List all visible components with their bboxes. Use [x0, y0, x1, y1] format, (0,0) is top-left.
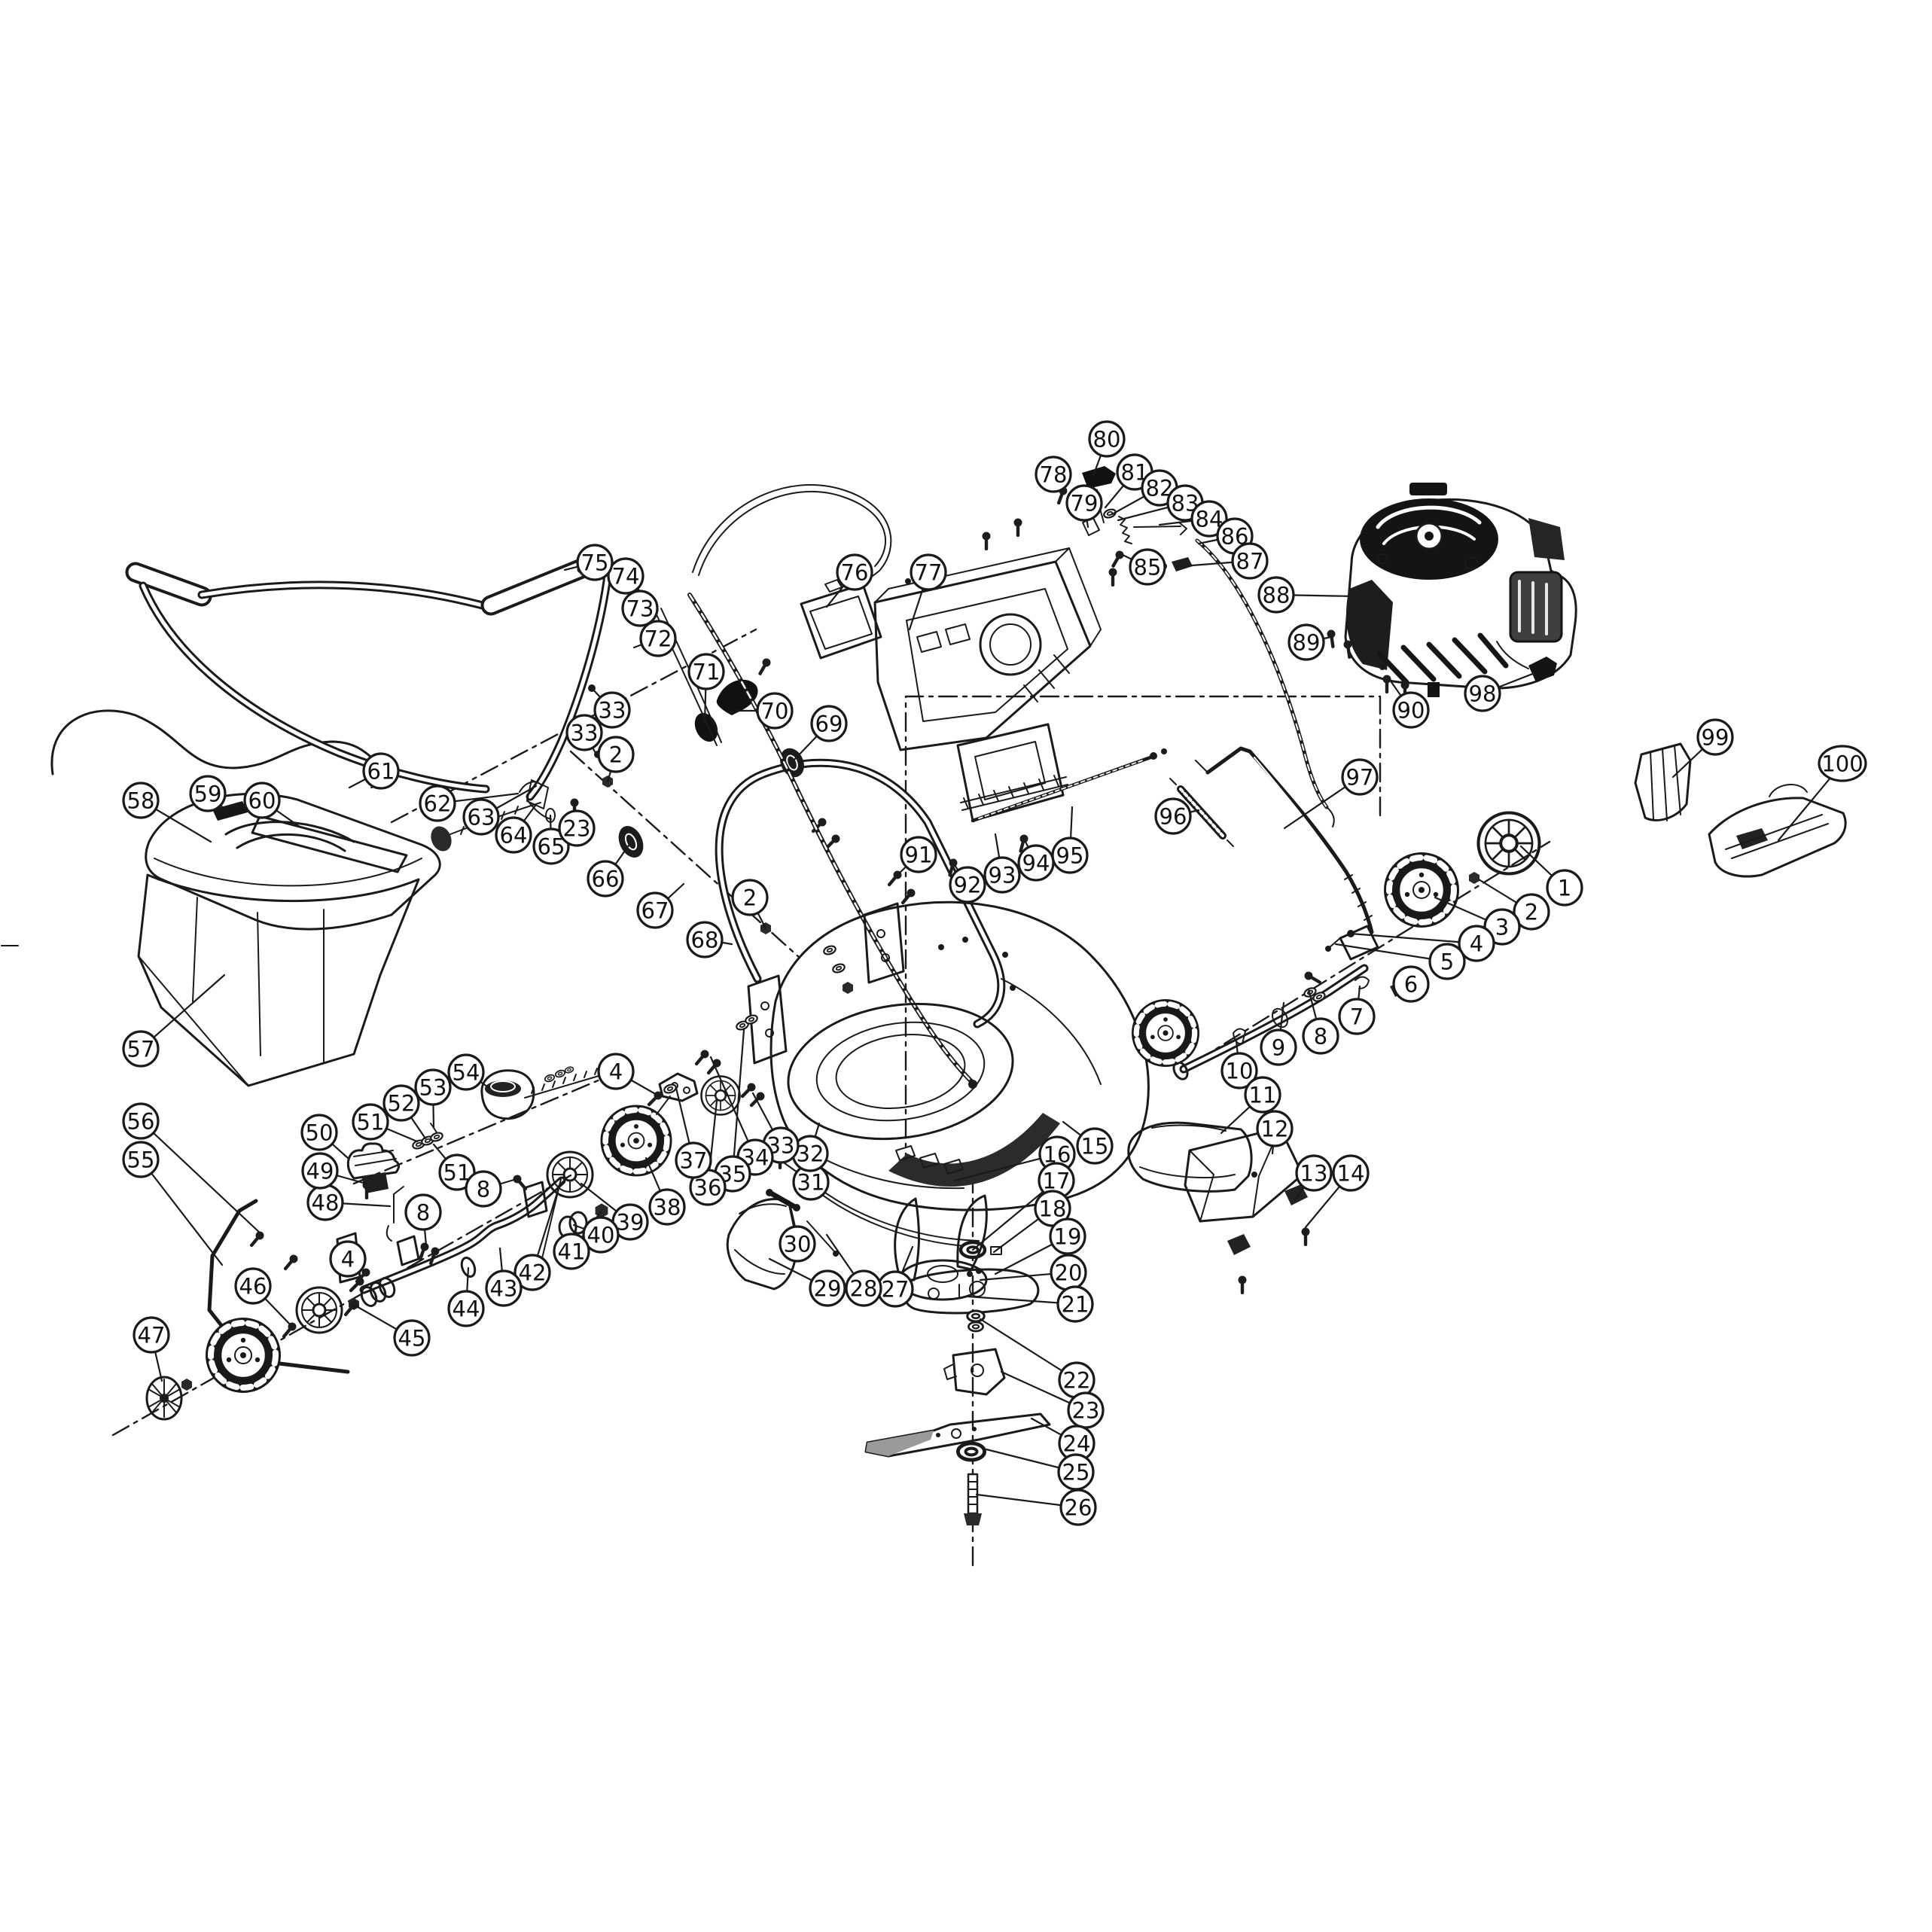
callout-67: 67 [638, 893, 672, 928]
svg-text:31: 31 [797, 1169, 825, 1195]
svg-text:28: 28 [850, 1275, 878, 1301]
callout-28: 28 [846, 1271, 881, 1306]
svg-text:73: 73 [626, 596, 654, 621]
callout-41: 41 [554, 1234, 589, 1269]
svg-text:29: 29 [814, 1275, 842, 1301]
callout-27: 27 [878, 1272, 913, 1306]
svg-text:80: 80 [1093, 426, 1121, 452]
callout-29: 29 [810, 1271, 845, 1306]
blade-assembly [866, 1196, 1050, 1525]
svg-text:79: 79 [1071, 490, 1099, 516]
callout-61: 61 [364, 754, 398, 788]
svg-text:46: 46 [239, 1273, 267, 1299]
svg-text:97: 97 [1346, 764, 1374, 790]
svg-text:52: 52 [388, 1090, 416, 1116]
svg-text:61: 61 [367, 758, 395, 784]
svg-text:9: 9 [1272, 1035, 1285, 1060]
rear-left-wheel [206, 1318, 281, 1393]
callout-68: 68 [687, 922, 722, 957]
svg-text:66: 66 [592, 866, 620, 891]
callout-52: 52 [384, 1086, 419, 1120]
svg-text:23: 23 [1072, 1397, 1100, 1423]
callout-20: 20 [1051, 1255, 1086, 1290]
callout-66: 66 [588, 861, 623, 896]
svg-text:100: 100 [1821, 751, 1863, 776]
svg-text:91: 91 [905, 842, 933, 867]
callout-14: 14 [1333, 1156, 1368, 1190]
callout-74: 74 [608, 559, 643, 593]
svg-text:14: 14 [1337, 1160, 1365, 1186]
callout-79: 79 [1067, 486, 1102, 520]
callout-25: 25 [1059, 1455, 1093, 1489]
svg-text:4: 4 [609, 1059, 623, 1084]
svg-text:85: 85 [1134, 554, 1162, 580]
svg-text:64: 64 [500, 822, 528, 848]
svg-text:78: 78 [1040, 462, 1068, 487]
svg-text:71: 71 [693, 659, 721, 684]
svg-text:6: 6 [1404, 971, 1418, 997]
svg-text:63: 63 [468, 804, 495, 830]
svg-text:72: 72 [645, 626, 672, 651]
callout-51: 51 [353, 1105, 388, 1139]
svg-text:36: 36 [694, 1175, 722, 1200]
svg-text:33: 33 [571, 720, 599, 745]
bag-cloth [139, 875, 419, 1086]
svg-text:39: 39 [617, 1209, 645, 1235]
svg-text:88: 88 [1263, 582, 1291, 608]
callout-76: 76 [837, 555, 872, 590]
svg-text:44: 44 [453, 1296, 480, 1321]
svg-text:33: 33 [599, 697, 626, 723]
blade-adapter [953, 1349, 1004, 1394]
callout-96: 96 [1156, 799, 1190, 833]
svg-text:93: 93 [989, 862, 1016, 888]
front-right-hubcap [1479, 813, 1540, 874]
callout-21: 21 [1058, 1287, 1092, 1321]
air-filter [1528, 518, 1565, 560]
svg-text:4: 4 [341, 1246, 355, 1272]
svg-text:68: 68 [691, 927, 719, 952]
svg-text:8: 8 [477, 1176, 490, 1202]
exploded-parts-diagram: 1234567891011121314151617181920212223242… [0, 0, 1932, 1932]
starter-handle [1409, 483, 1447, 495]
callout-80: 80 [1089, 422, 1124, 456]
leader-56-60 [141, 1121, 262, 1235]
front-left-wheel [297, 1287, 342, 1333]
callout-6: 6 [1394, 967, 1428, 1001]
svg-text:12: 12 [1261, 1116, 1289, 1141]
callout-44: 44 [449, 1291, 483, 1326]
svg-text:13: 13 [1300, 1160, 1328, 1186]
svg-text:54: 54 [453, 1059, 480, 1085]
callout-13: 13 [1297, 1156, 1331, 1190]
callout-2: 2 [599, 737, 633, 772]
front-right-wheel [1384, 852, 1459, 928]
svg-text:43: 43 [490, 1275, 518, 1301]
callout-97: 97 [1342, 760, 1377, 794]
lower-handle [588, 657, 1001, 1024]
bag-trim-strip [252, 816, 407, 872]
callout-92: 92 [950, 867, 985, 902]
callout-78: 78 [1036, 457, 1071, 492]
svg-text:30: 30 [784, 1231, 812, 1257]
svg-text:17: 17 [1043, 1168, 1071, 1193]
callout-75: 75 [577, 545, 612, 580]
svg-text:57: 57 [127, 1036, 155, 1062]
svg-text:96: 96 [1160, 803, 1187, 829]
engine [1327, 483, 1576, 699]
svg-text:1: 1 [1558, 875, 1571, 900]
side-chute [1709, 785, 1845, 876]
callout-1: 1 [1547, 870, 1582, 905]
callout-8: 8 [1303, 1019, 1338, 1053]
svg-text:32: 32 [797, 1141, 824, 1166]
svg-text:11: 11 [1249, 1082, 1277, 1108]
leader-4-3 [1351, 934, 1476, 943]
callout-71: 71 [689, 654, 724, 689]
callout-90: 90 [1394, 693, 1428, 727]
callout-9: 9 [1261, 1030, 1296, 1065]
svg-text:26: 26 [1065, 1495, 1092, 1520]
svg-text:67: 67 [641, 897, 669, 923]
svg-text:41: 41 [558, 1239, 586, 1264]
svg-text:15: 15 [1081, 1133, 1109, 1159]
callout-94: 94 [1019, 846, 1053, 880]
svg-text:90: 90 [1397, 697, 1425, 723]
callout-12: 12 [1257, 1111, 1292, 1146]
callout-26: 26 [1061, 1490, 1096, 1525]
discharge-housing [1129, 1123, 1310, 1294]
svg-text:53: 53 [419, 1074, 447, 1100]
svg-text:5: 5 [1440, 949, 1454, 974]
svg-text:7: 7 [1350, 1004, 1364, 1029]
svg-text:21: 21 [1062, 1291, 1089, 1317]
svg-text:27: 27 [882, 1276, 910, 1302]
callout-46: 46 [236, 1269, 270, 1303]
callout-30: 30 [780, 1227, 815, 1261]
callout-50: 50 [302, 1115, 337, 1150]
svg-text:92: 92 [954, 872, 982, 897]
bail-cam [690, 709, 722, 745]
callout-72: 72 [641, 621, 675, 656]
svg-text:3: 3 [1495, 914, 1509, 940]
callout-49: 49 [303, 1153, 337, 1188]
svg-text:50: 50 [306, 1120, 334, 1145]
callout-4: 4 [599, 1054, 633, 1089]
callout-91: 91 [901, 837, 936, 872]
svg-text:37: 37 [680, 1147, 708, 1173]
svg-text:45: 45 [398, 1325, 426, 1351]
callout-45: 45 [395, 1321, 429, 1355]
callout-64: 64 [496, 818, 531, 852]
callout-95: 95 [1053, 838, 1087, 873]
svg-text:98: 98 [1469, 681, 1497, 706]
callout-56: 56 [123, 1104, 158, 1138]
callout-54: 54 [449, 1055, 483, 1089]
svg-text:77: 77 [915, 559, 943, 585]
callout-88: 88 [1259, 577, 1294, 612]
callout-85: 85 [1130, 550, 1165, 584]
svg-text:62: 62 [424, 791, 452, 816]
callout-69: 69 [812, 706, 846, 741]
callout-33: 33 [567, 715, 602, 750]
mulch-wedge [1635, 744, 1690, 821]
svg-text:75: 75 [581, 550, 609, 575]
svg-text:38: 38 [654, 1194, 681, 1220]
svg-text:76: 76 [841, 559, 869, 585]
callout-19: 19 [1050, 1219, 1085, 1254]
svg-text:40: 40 [587, 1222, 615, 1248]
callout-53: 53 [416, 1070, 450, 1105]
rear-right-wheel [1132, 999, 1199, 1067]
callout-8: 8 [466, 1172, 501, 1206]
callout-57: 57 [123, 1032, 158, 1066]
svg-text:10: 10 [1226, 1058, 1254, 1083]
svg-text:8: 8 [416, 1199, 430, 1225]
svg-text:94: 94 [1022, 850, 1050, 876]
gearbox [482, 1066, 611, 1119]
control-panel [801, 519, 1101, 751]
callout-11: 11 [1245, 1077, 1280, 1112]
svg-text:23: 23 [563, 815, 591, 841]
svg-text:2: 2 [743, 885, 757, 910]
callout-23: 23 [1068, 1393, 1103, 1428]
callout-37: 37 [676, 1143, 711, 1178]
callout-58: 58 [123, 783, 158, 818]
callout-63: 63 [464, 800, 498, 834]
callout-38: 38 [650, 1190, 684, 1224]
svg-text:60: 60 [248, 788, 276, 813]
callout-23: 23 [559, 811, 594, 846]
callout-33: 33 [595, 693, 629, 727]
callout-93: 93 [985, 858, 1019, 892]
svg-text:42: 42 [519, 1260, 547, 1285]
svg-text:51: 51 [357, 1109, 385, 1135]
svg-text:87: 87 [1236, 548, 1264, 574]
svg-text:95: 95 [1056, 843, 1084, 868]
callout-70: 70 [757, 693, 792, 728]
leader-55-59 [141, 1160, 222, 1265]
callout-60: 60 [245, 783, 279, 818]
svg-text:22: 22 [1063, 1367, 1091, 1393]
callout-7: 7 [1339, 999, 1374, 1034]
callout-15: 15 [1077, 1129, 1112, 1163]
svg-text:89: 89 [1293, 629, 1321, 655]
drive-gear-wheel [547, 1152, 593, 1197]
callout-89: 89 [1289, 625, 1324, 660]
rear-mid-wheel [601, 1105, 672, 1177]
svg-text:47: 47 [138, 1322, 166, 1348]
callout-8: 8 [406, 1195, 440, 1230]
svg-text:48: 48 [312, 1190, 340, 1215]
callout-5: 5 [1430, 944, 1464, 979]
svg-text:2: 2 [1525, 899, 1538, 925]
svg-text:56: 56 [127, 1108, 155, 1134]
svg-text:49: 49 [306, 1158, 334, 1184]
callout-4: 4 [331, 1242, 365, 1276]
callout-99: 99 [1698, 720, 1732, 754]
svg-text:8: 8 [1314, 1023, 1327, 1049]
svg-text:18: 18 [1039, 1196, 1067, 1221]
callout-48: 48 [308, 1185, 343, 1220]
callout-2: 2 [733, 880, 767, 915]
diagram-page: 1234567891011121314151617181920212223242… [0, 0, 1932, 1932]
svg-text:99: 99 [1702, 724, 1729, 750]
callout-98: 98 [1465, 676, 1500, 711]
svg-text:4: 4 [1470, 931, 1483, 956]
svg-text:70: 70 [761, 698, 789, 724]
blade-bolt [964, 1474, 982, 1525]
callout-47: 47 [134, 1318, 169, 1352]
callout-77: 77 [911, 555, 946, 590]
svg-text:25: 25 [1062, 1459, 1090, 1485]
svg-text:19: 19 [1054, 1223, 1082, 1249]
callout-73: 73 [623, 591, 657, 626]
callout-43: 43 [486, 1271, 521, 1306]
svg-text:74: 74 [612, 563, 640, 589]
callout-55: 55 [123, 1142, 158, 1177]
svg-text:55: 55 [127, 1147, 155, 1172]
svg-text:58: 58 [127, 788, 155, 813]
svg-text:59: 59 [194, 781, 222, 806]
handle-grommet [614, 822, 648, 861]
handle-bracket-plate [864, 904, 904, 983]
spark-plug-boot [1528, 657, 1557, 682]
callout-87: 87 [1233, 544, 1267, 578]
svg-text:2: 2 [609, 742, 623, 767]
svg-text:69: 69 [815, 711, 843, 736]
callout-62: 62 [420, 786, 455, 821]
svg-text:24: 24 [1063, 1431, 1091, 1456]
svg-text:20: 20 [1055, 1260, 1083, 1285]
callout-59: 59 [190, 776, 225, 811]
callout-100: 100 [1819, 746, 1866, 781]
grass-bag [139, 794, 440, 1372]
